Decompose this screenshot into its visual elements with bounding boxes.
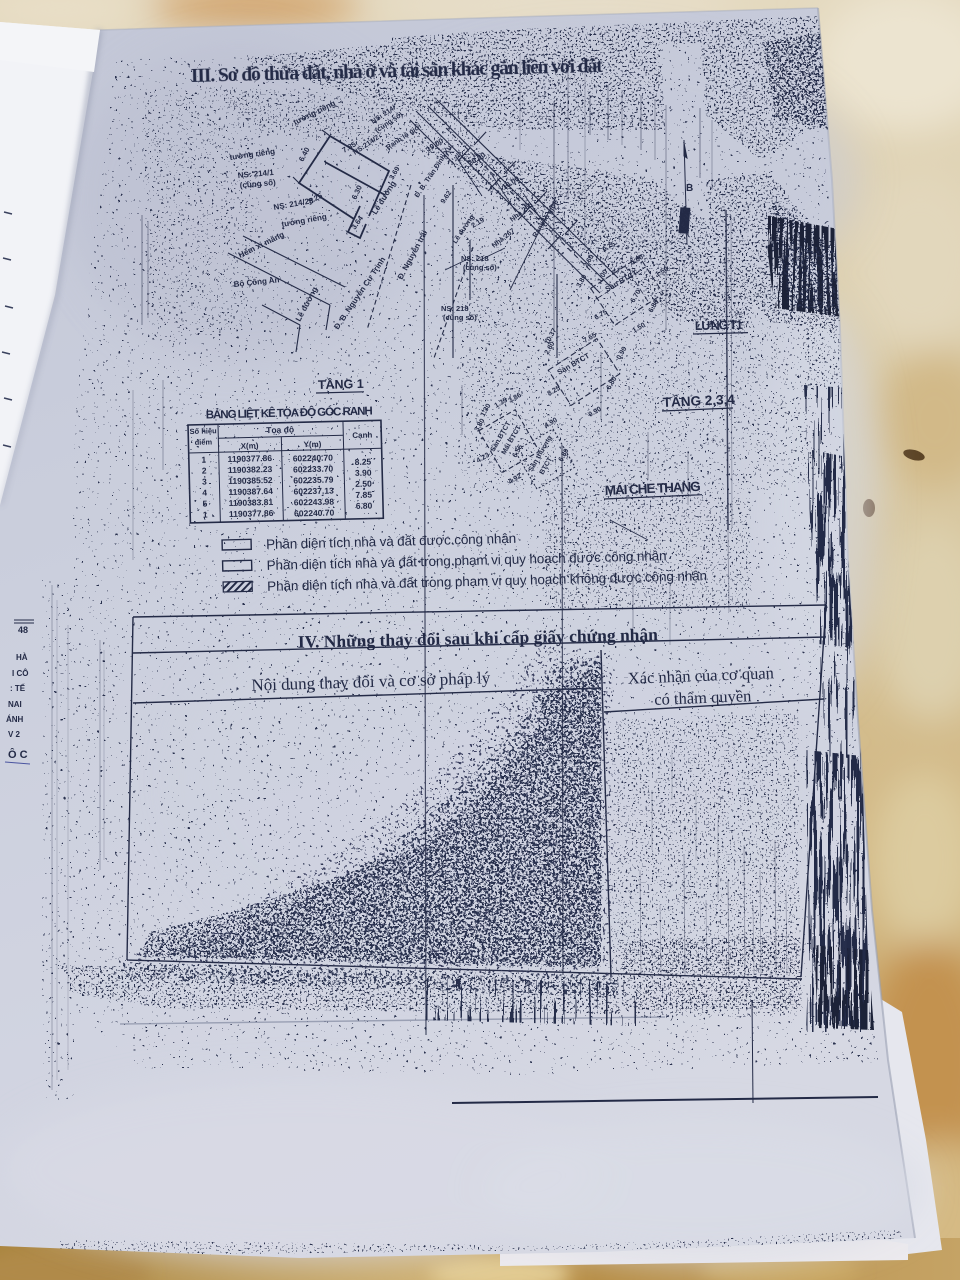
svg-text:HÀ: HÀ <box>16 653 28 662</box>
svg-text:NAI: NAI <box>8 700 22 709</box>
svg-text:I CÔ: I CÔ <box>12 669 28 678</box>
svg-text:Ô C: Ô C <box>8 748 28 761</box>
svg-text:48: 48 <box>18 625 28 635</box>
svg-text:: TẾ: : TẾ <box>10 683 26 693</box>
svg-text:ÁNH: ÁNH <box>6 715 24 724</box>
svg-text:V 2: V 2 <box>8 730 21 739</box>
